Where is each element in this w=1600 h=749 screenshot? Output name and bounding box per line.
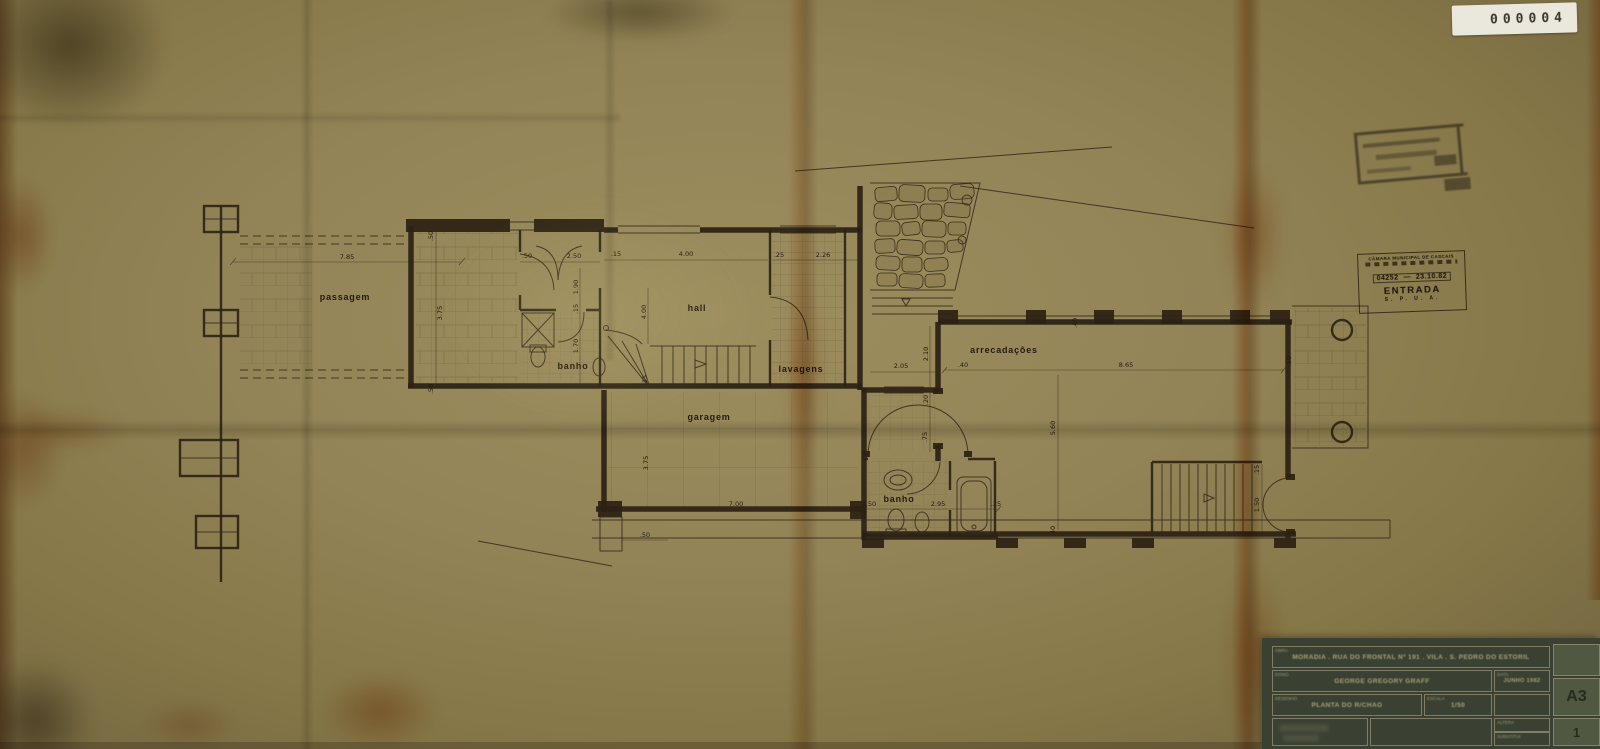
dimension-label: 2.26 [816, 251, 830, 259]
titleblock-empty-cell [1494, 694, 1550, 716]
titleblock-dono-cell: DONO GEORGE GREGORY GRAFF [1272, 670, 1492, 692]
dimension-label: .20 [922, 395, 930, 405]
sheet-format: A3 [1566, 688, 1586, 706]
dimension-label: .50 [1285, 356, 1293, 366]
dimension-label: .50 [427, 231, 435, 241]
room-label: hall [688, 303, 707, 313]
dimension-label: .50 [866, 500, 876, 508]
dimension-label: 2.50 [567, 252, 581, 260]
titleblock-notes-cell [1272, 718, 1368, 746]
dimension-label: 1.70 [572, 339, 580, 353]
dono-label: DONO [1275, 672, 1289, 677]
titleblock-altera-cell: ALTERA [1494, 718, 1550, 732]
dimension-label: .50 [427, 384, 435, 394]
east-patio [1292, 306, 1368, 448]
altera-label: ALTERA [1497, 720, 1514, 725]
floor-plan: passagem banho hall lavagens garagem arr… [0, 0, 1600, 749]
dimension-label: .15 [1253, 465, 1261, 475]
titleblock-escala-cell: ESCALA 1/50 [1424, 694, 1492, 716]
room-label: banho [884, 494, 915, 504]
dimension-label: .15 [572, 304, 580, 314]
data-value: JUNHO 1982 [1495, 678, 1549, 684]
sticker-number: 000004 [1490, 10, 1567, 27]
room-label: arrecadações [970, 345, 1038, 355]
dimension-label: .25 [774, 251, 784, 259]
dimension-label: 2.95 [931, 500, 945, 508]
dimension-label: 8.65 [1119, 361, 1133, 369]
dimension-label: 2.10 [922, 347, 930, 361]
titleblock-data-cell: DATA JUNHO 1982 [1494, 670, 1550, 692]
escala-value: 1/50 [1425, 702, 1491, 709]
faded-stamp [1354, 123, 1469, 190]
dimension-label: .75 [921, 432, 929, 442]
dimension-label: 1.50 [1253, 498, 1261, 512]
inventory-sticker: 000004 [1452, 2, 1578, 35]
titleblock-obra-cell: OBRA MORADIA . RUA DO FRONTAL Nº 191 . V… [1272, 646, 1550, 668]
dono-value: GEORGE GREGORY GRAFF [1273, 678, 1491, 685]
boundary-wall [180, 206, 238, 582]
stone-ramp [795, 147, 1254, 314]
titleblock-empty-cell2 [1370, 718, 1492, 746]
title-block: OBRA MORADIA . RUA DO FRONTAL Nº 191 . V… [1262, 638, 1600, 749]
sheet-number: 1 [1573, 725, 1580, 740]
dimension-label: .40 [1049, 526, 1057, 536]
titleblock-desenho-cell: DESENHO PLANTA DO R/CHÃO [1272, 694, 1422, 716]
dimension-label: 3.75 [436, 306, 444, 320]
dimension-label: .40 [1071, 318, 1079, 328]
dimension-label: 4.00 [679, 250, 693, 258]
dimension-label: 7.85 [340, 253, 354, 261]
dimension-label: .15 [611, 250, 621, 258]
titleblock-substitui-cell: SUBSTITUI [1494, 732, 1550, 746]
entry-stamp: CÂMARA MUNICIPAL DE CASCAIS 04252 — 23.1… [1357, 250, 1467, 314]
desenho-label: DESENHO [1275, 696, 1297, 701]
entry-stamp-date: 23.10.82 [1416, 273, 1447, 281]
dimension-label: 5.60 [1049, 421, 1057, 435]
room-label: lavagens [779, 364, 824, 374]
lavagens [770, 186, 862, 390]
desenho-value: PLANTA DO R/CHÃO [1273, 702, 1421, 709]
dimension-label: 2.05 [894, 362, 908, 370]
dimension-label: .50 [640, 531, 650, 539]
dimension-label: 1.90 [572, 280, 580, 294]
bath-right [862, 459, 998, 537]
sheet-format-cell: A3 [1553, 678, 1600, 716]
room-label: passagem [320, 292, 370, 302]
escala-label: ESCALA [1427, 696, 1445, 701]
dimension-label: 4.00 [640, 305, 648, 319]
dimension-label: .40 [958, 361, 968, 369]
data-label: DATA [1497, 672, 1508, 677]
scanned-drawing-sheet: passagem banho hall lavagens garagem arr… [0, 0, 1600, 749]
stair-right [1152, 462, 1295, 535]
substitui-label: SUBSTITUI [1497, 734, 1521, 739]
obra-value: MORADIA . RUA DO FRONTAL Nº 191 . VILA .… [1273, 654, 1549, 661]
sheet-number-cell: 1 [1553, 718, 1600, 746]
room-label: garagem [687, 412, 730, 422]
titleblock-top-right-cell [1553, 644, 1600, 676]
stairs-hall [604, 326, 757, 389]
dimension-label: 3.75 [642, 456, 650, 470]
dimension-label: 7.00 [729, 500, 743, 508]
dimension-label: .25 [641, 375, 649, 385]
room-label: banho [558, 361, 589, 371]
entry-stamp-number: 04252 [1376, 274, 1398, 282]
dimension-label: .25 [991, 500, 1001, 508]
obra-label: OBRA [1275, 648, 1288, 653]
dimension-label: .50 [522, 252, 532, 260]
